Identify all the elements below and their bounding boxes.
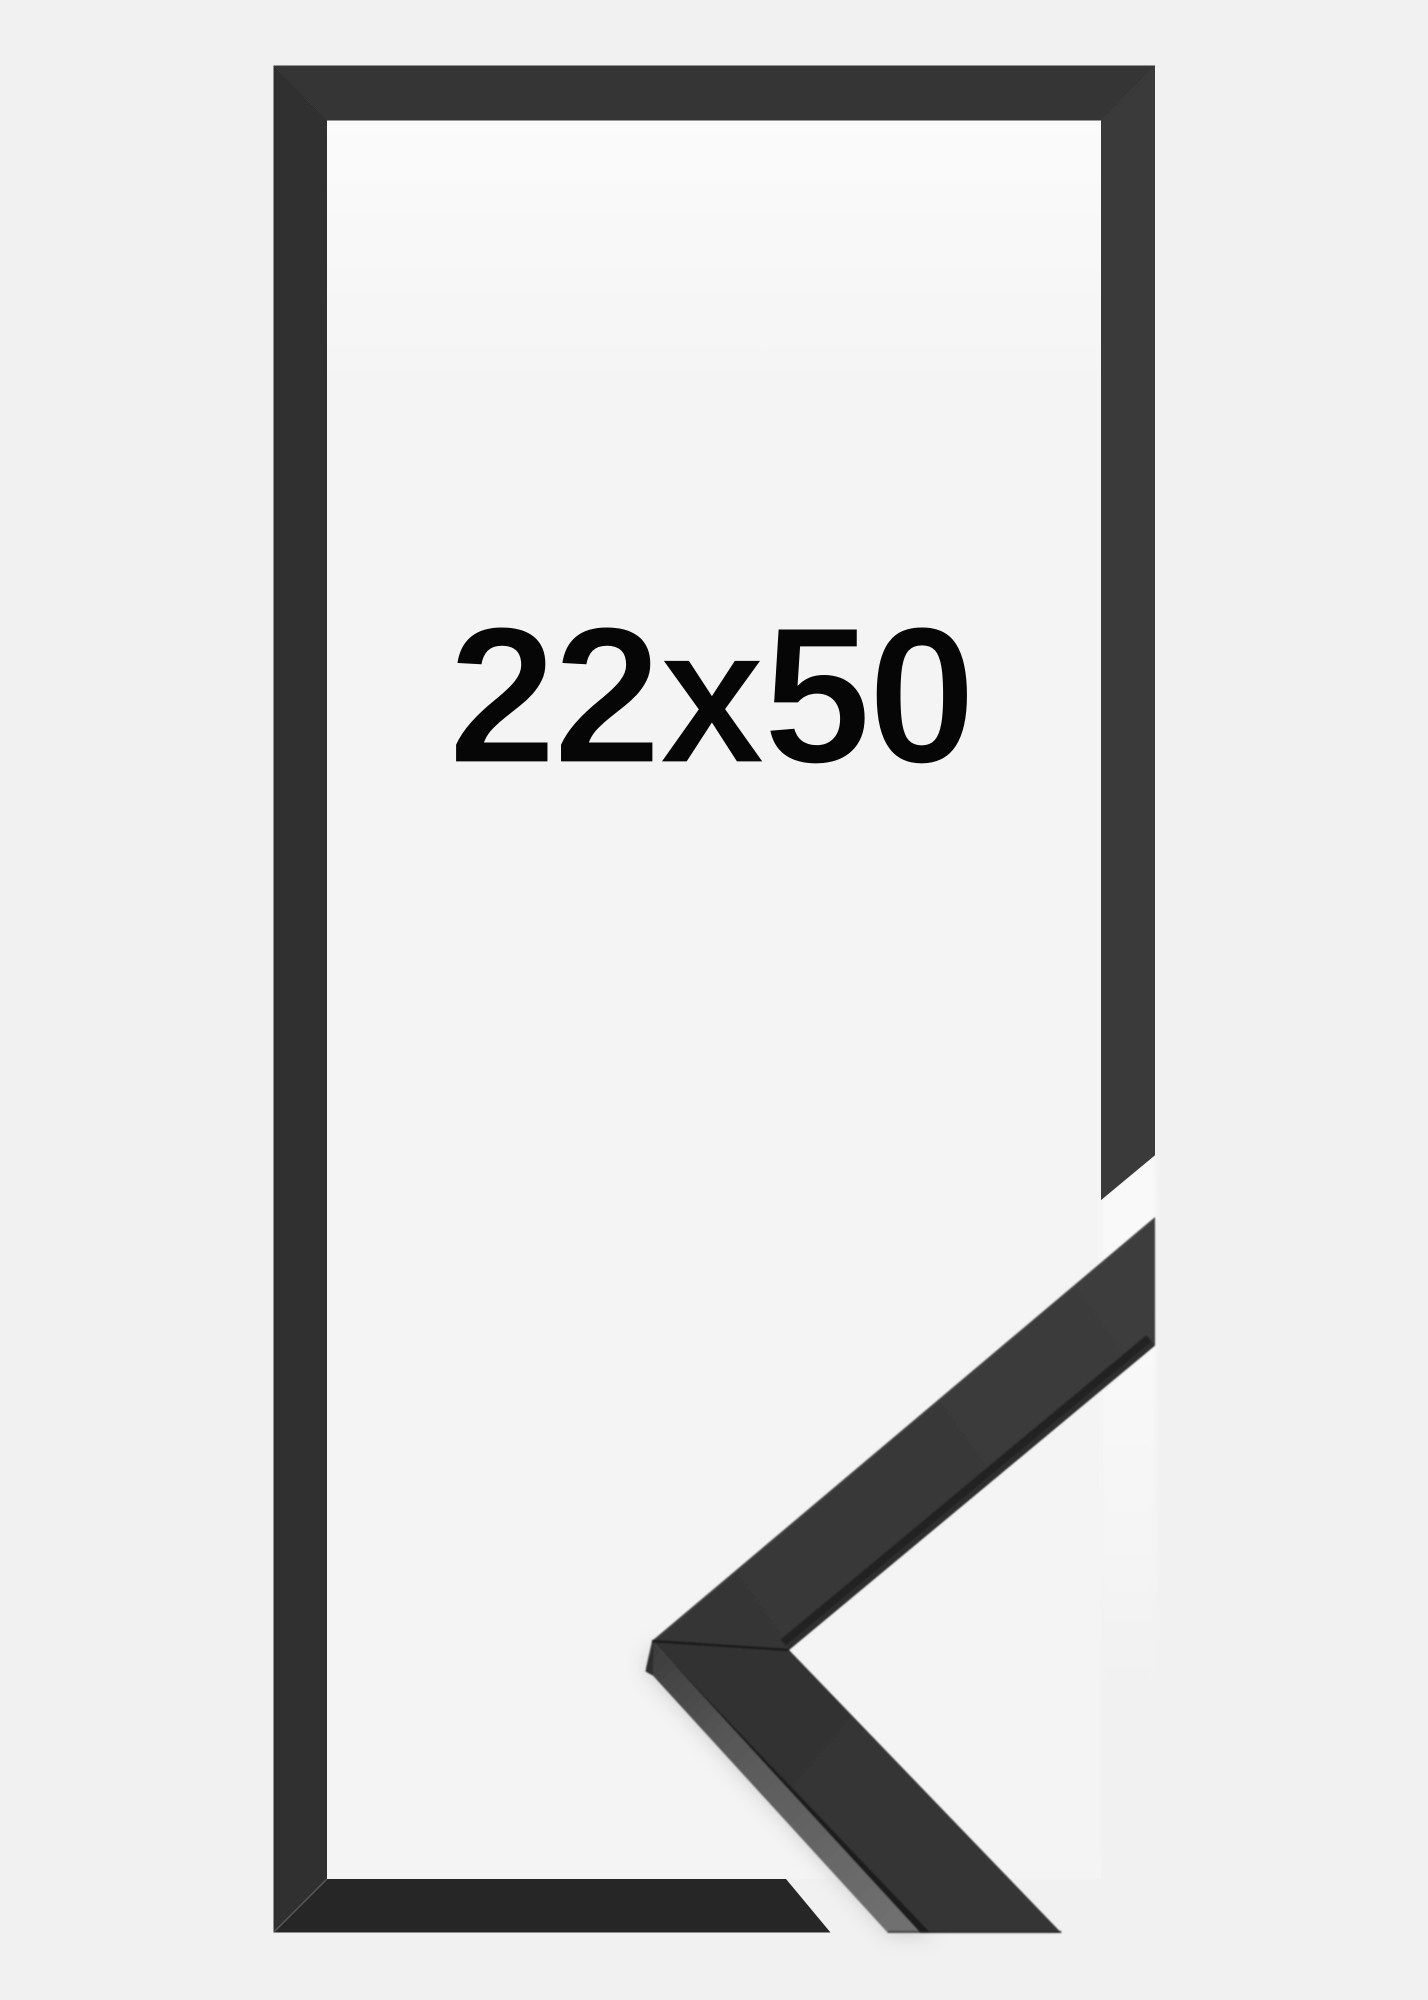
svg-text:22x50: 22x50 (448, 585, 973, 805)
